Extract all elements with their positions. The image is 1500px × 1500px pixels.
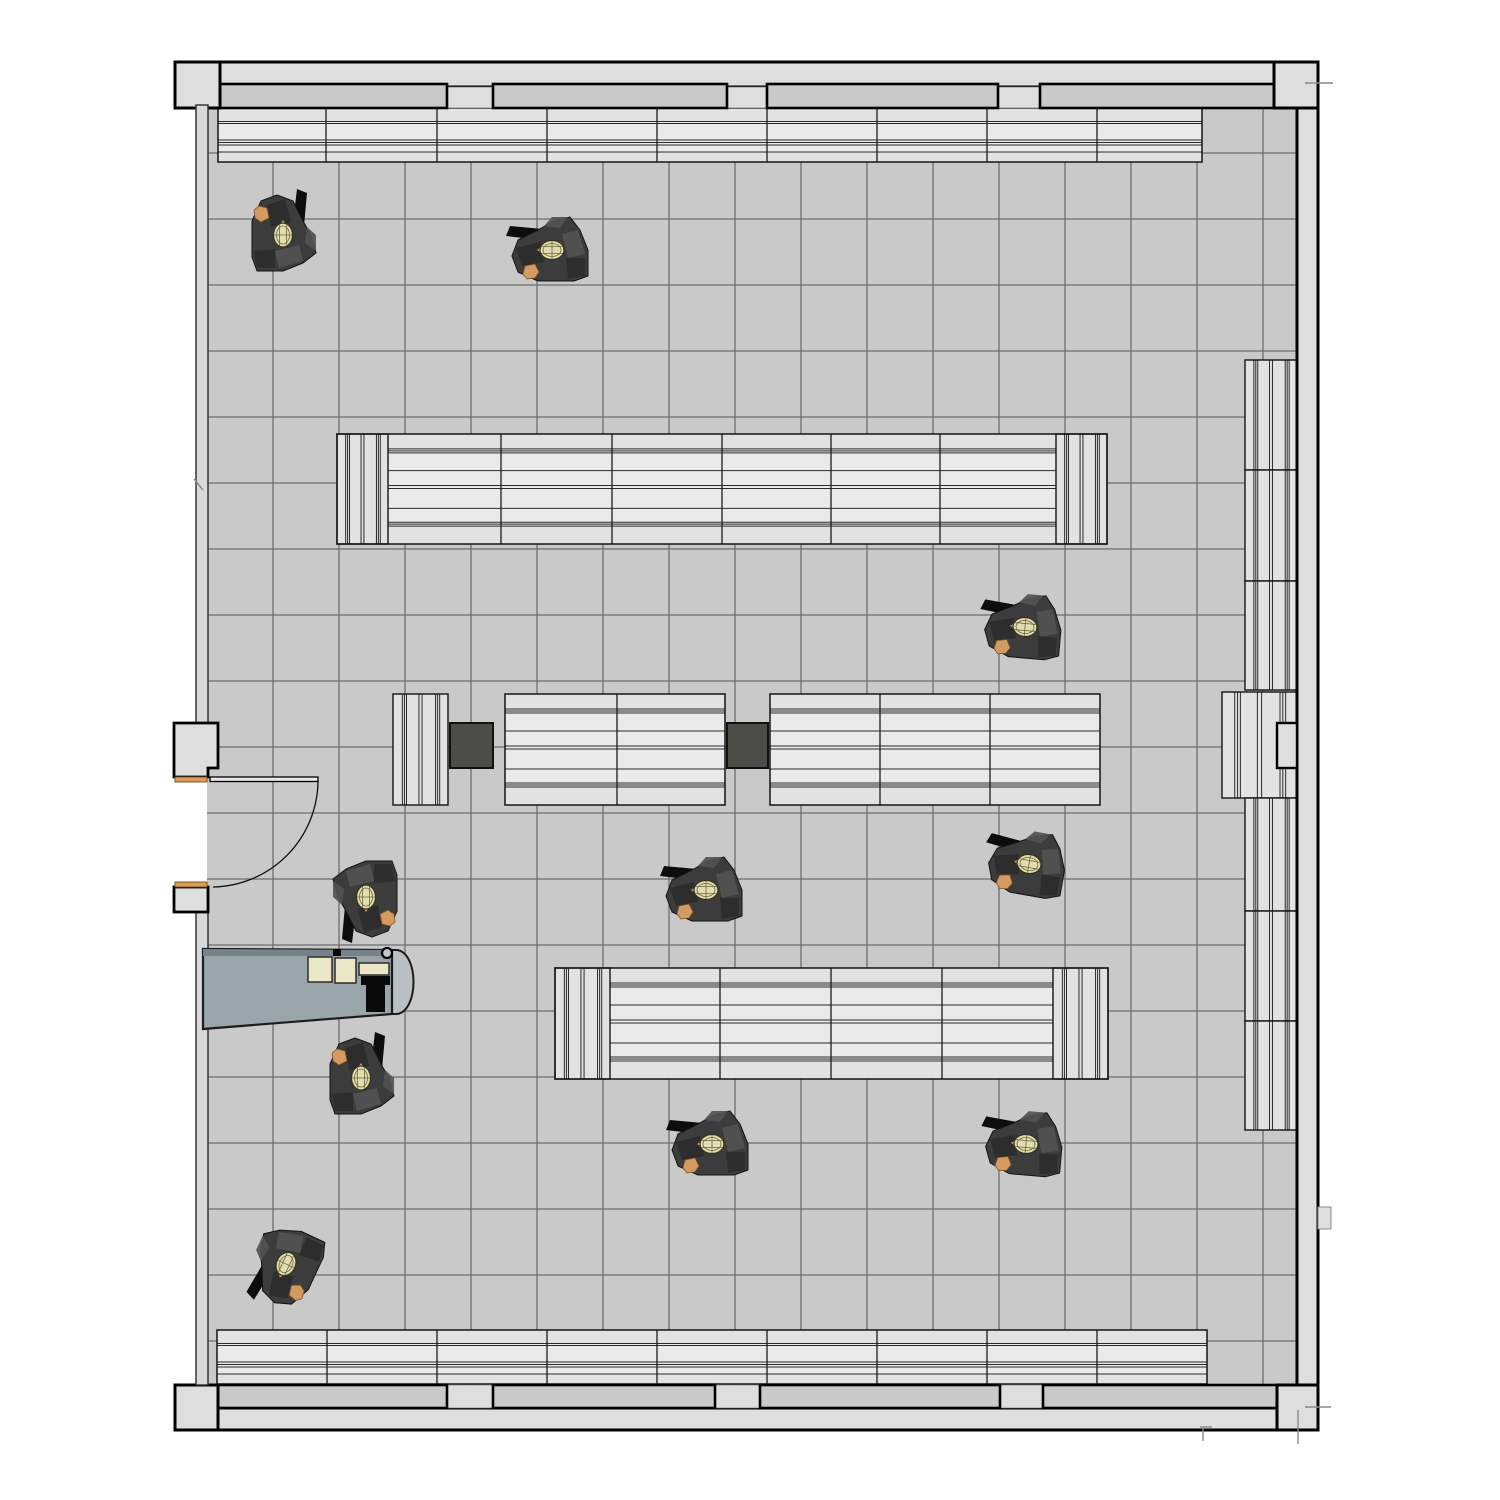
wall-pillar: [1043, 1385, 1277, 1408]
shelf-end-cap: [337, 434, 388, 544]
shelf-end-cap: [555, 968, 610, 1079]
entry-box-bottom: [174, 887, 208, 912]
desk-keyboard: [359, 963, 389, 975]
desk-monitor-stand: [366, 985, 385, 1012]
wall-band: [1297, 62, 1318, 1430]
wall-recess: [727, 87, 767, 108]
desk-paper: [335, 958, 356, 983]
wall-pillar: [1040, 84, 1274, 108]
wall-pillar: [220, 84, 447, 108]
wall-pillar: [760, 1385, 1000, 1408]
desk-back-edge: [203, 949, 392, 956]
wall-pillar: [493, 1385, 715, 1408]
wall-recess: [447, 87, 493, 108]
shelf-unit[interactable]: [555, 968, 1108, 1079]
desk-surface: [203, 949, 392, 1029]
door-leaf[interactable]: [210, 777, 318, 782]
wall-shelf-segment[interactable]: [1245, 1021, 1297, 1130]
wall-shelf-segment[interactable]: [1245, 798, 1297, 911]
shelf-unit[interactable]: [770, 694, 1100, 805]
wall-pillar: [767, 84, 998, 108]
shelf-end-cap: [1056, 434, 1107, 544]
wall-pillar: [218, 1385, 447, 1408]
wall-recess: [447, 1385, 493, 1408]
wall-corner-block: [1274, 62, 1318, 108]
wall-pillar: [493, 84, 727, 108]
wall-shelf-segment[interactable]: [1245, 360, 1297, 470]
display-block[interactable]: [450, 723, 493, 768]
desk-cup: [382, 948, 392, 958]
desk-paper: [308, 957, 332, 982]
display-block[interactable]: [727, 723, 768, 768]
wall-corner-block: [175, 1385, 218, 1430]
desk-monitor: [361, 976, 390, 985]
shelf-unit[interactable]: [217, 1330, 1207, 1384]
wall-shelf-segment[interactable]: [393, 694, 448, 805]
wall-shelf-segment[interactable]: [1245, 581, 1297, 690]
floor-plan-canvas: [0, 0, 1500, 1500]
wall-recess: [715, 1385, 760, 1408]
wall-shelf-segment[interactable]: [1245, 911, 1297, 1021]
wall-corner-block: [175, 62, 220, 108]
exterior-stub: [1318, 1207, 1331, 1229]
floor-plan-drawing: [0, 0, 1500, 1500]
shelf-unit[interactable]: [337, 434, 1107, 544]
door-frame-strip: [175, 777, 207, 782]
wall-recess: [998, 87, 1040, 108]
left-wall-segment: [196, 105, 208, 723]
door-frame-strip: [175, 882, 207, 887]
entry-box-top: [174, 723, 218, 777]
wall-band: [175, 1408, 1318, 1430]
wall-notch-block: [1277, 723, 1297, 768]
wall-recess: [1000, 1385, 1043, 1408]
shelf-unit[interactable]: [505, 694, 725, 805]
shelf-unit[interactable]: [218, 108, 1202, 162]
shelf-end-cap: [1053, 968, 1108, 1079]
wall-shelf-segment[interactable]: [1245, 470, 1297, 581]
desk-phone: [333, 949, 341, 956]
